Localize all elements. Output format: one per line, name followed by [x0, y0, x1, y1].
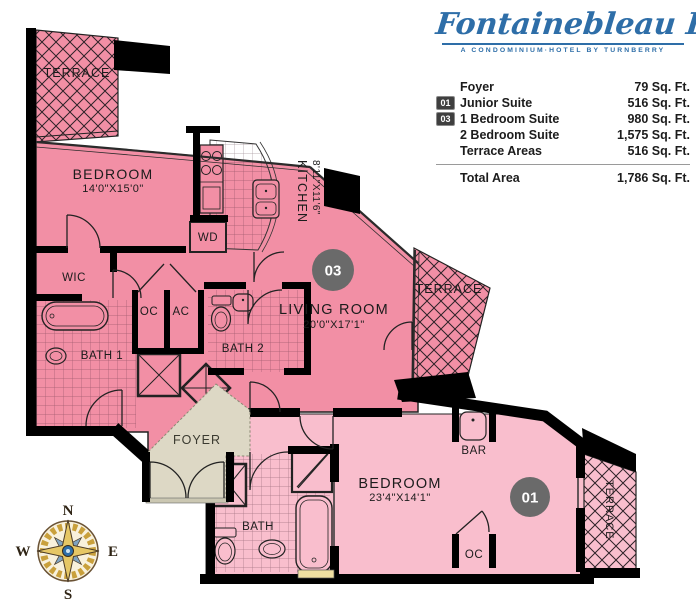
wall-segment [226, 452, 234, 502]
unit-01-plan-badge: 01 [510, 477, 550, 517]
toilet-icon [212, 296, 232, 331]
junior-bathtub-icon [296, 496, 332, 572]
floorplan-page: Fontainebleau II A CONDOMINIUM·HOTEL BY … [0, 0, 696, 605]
washer-dryer-label: WD [198, 232, 218, 244]
compass-south-label: S [64, 587, 72, 603]
oc-label: OC [140, 306, 158, 318]
bar-sink-icon [460, 412, 486, 440]
junior-oc-label: OC [465, 549, 483, 561]
junior-bedroom-dims: 23'4"X14'1" [369, 492, 431, 504]
bath2-label: BATH 2 [222, 343, 264, 355]
unit-01-number: 01 [522, 490, 539, 507]
ac-label: AC [173, 306, 190, 318]
living-room-label: LIVING ROOM [279, 302, 389, 318]
junior-toilet-icon [214, 528, 236, 564]
compass-west-label: W [16, 544, 31, 560]
terrace-top-label: TERRACE [44, 66, 111, 80]
foyer-label: FOYER [173, 433, 221, 447]
stove-icon [200, 145, 223, 213]
junior-closet-box [292, 448, 332, 492]
terrace-top-left [36, 30, 170, 142]
entry-sill [146, 498, 228, 503]
vanity-sink-icon [233, 294, 253, 311]
compass-rose: N E S W [16, 503, 119, 603]
living-room-dims: 20'0"X17'1" [303, 319, 365, 331]
junior-bath-label: BATH [242, 521, 274, 533]
unit-03-number: 03 [325, 263, 342, 280]
pedestal-sink-icon [46, 348, 66, 364]
bath1-label: BATH 1 [81, 350, 123, 362]
kitchen-sink-icon [253, 180, 279, 218]
junior-bedroom-label: BEDROOM [358, 476, 441, 492]
kitchen-label: KITCHEN [295, 160, 309, 223]
window-sill [298, 570, 334, 578]
master-bedroom-dims: 14'0"X15'0" [82, 183, 144, 195]
bar-label: BAR [461, 445, 486, 457]
wall-segment [576, 508, 585, 572]
floorplan-svg: 03 01 TERRACE BEDROOM 14'0"X15'0" KITCHE… [0, 0, 696, 605]
terrace-bottom-label: TERRACE [603, 480, 615, 540]
shower-icon [138, 354, 180, 396]
master-bedroom-label: BEDROOM [73, 166, 154, 182]
bathtub-icon [42, 302, 108, 330]
compass-east-label: E [108, 544, 118, 560]
unit-03-plan-badge: 03 [312, 249, 354, 291]
wall-segment [142, 452, 150, 502]
kitchen-dims: 8'11"X11'6" [310, 160, 321, 215]
junior-sink-icon [259, 540, 285, 558]
wall-stub [114, 40, 170, 74]
terrace-right-label: TERRACE [416, 282, 483, 296]
terrace-right [412, 248, 490, 386]
wic-label: WIC [62, 272, 86, 284]
compass-north-label: N [63, 503, 74, 519]
